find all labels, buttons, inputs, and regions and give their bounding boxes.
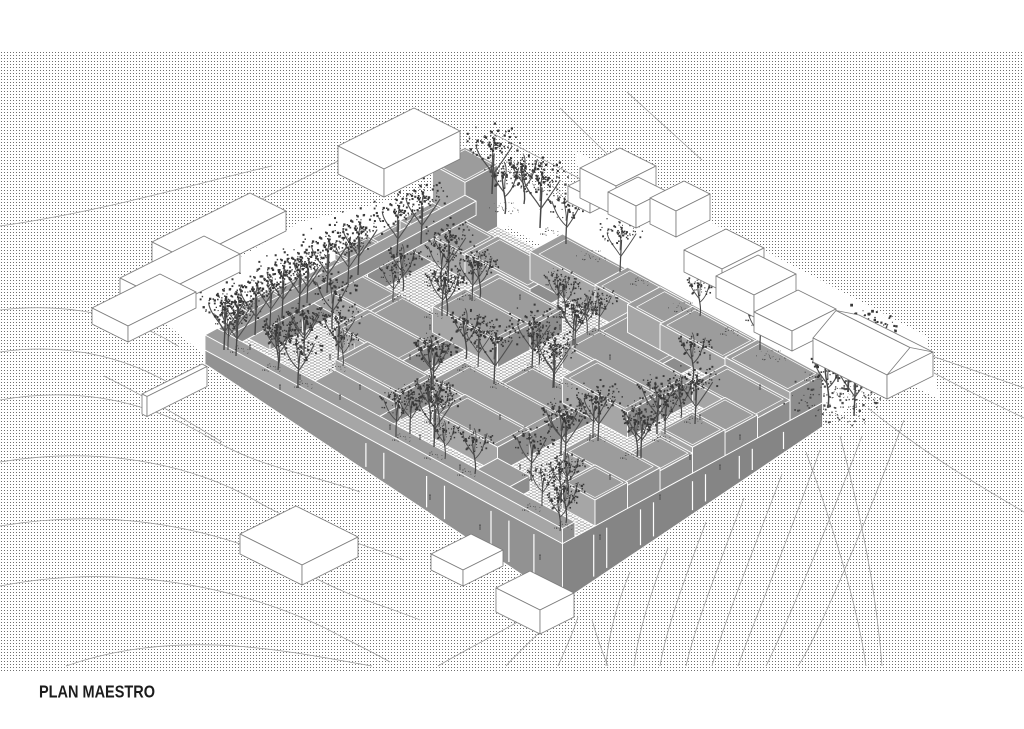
svg-text:PLAN MAESTRO: PLAN MAESTRO (39, 682, 155, 702)
